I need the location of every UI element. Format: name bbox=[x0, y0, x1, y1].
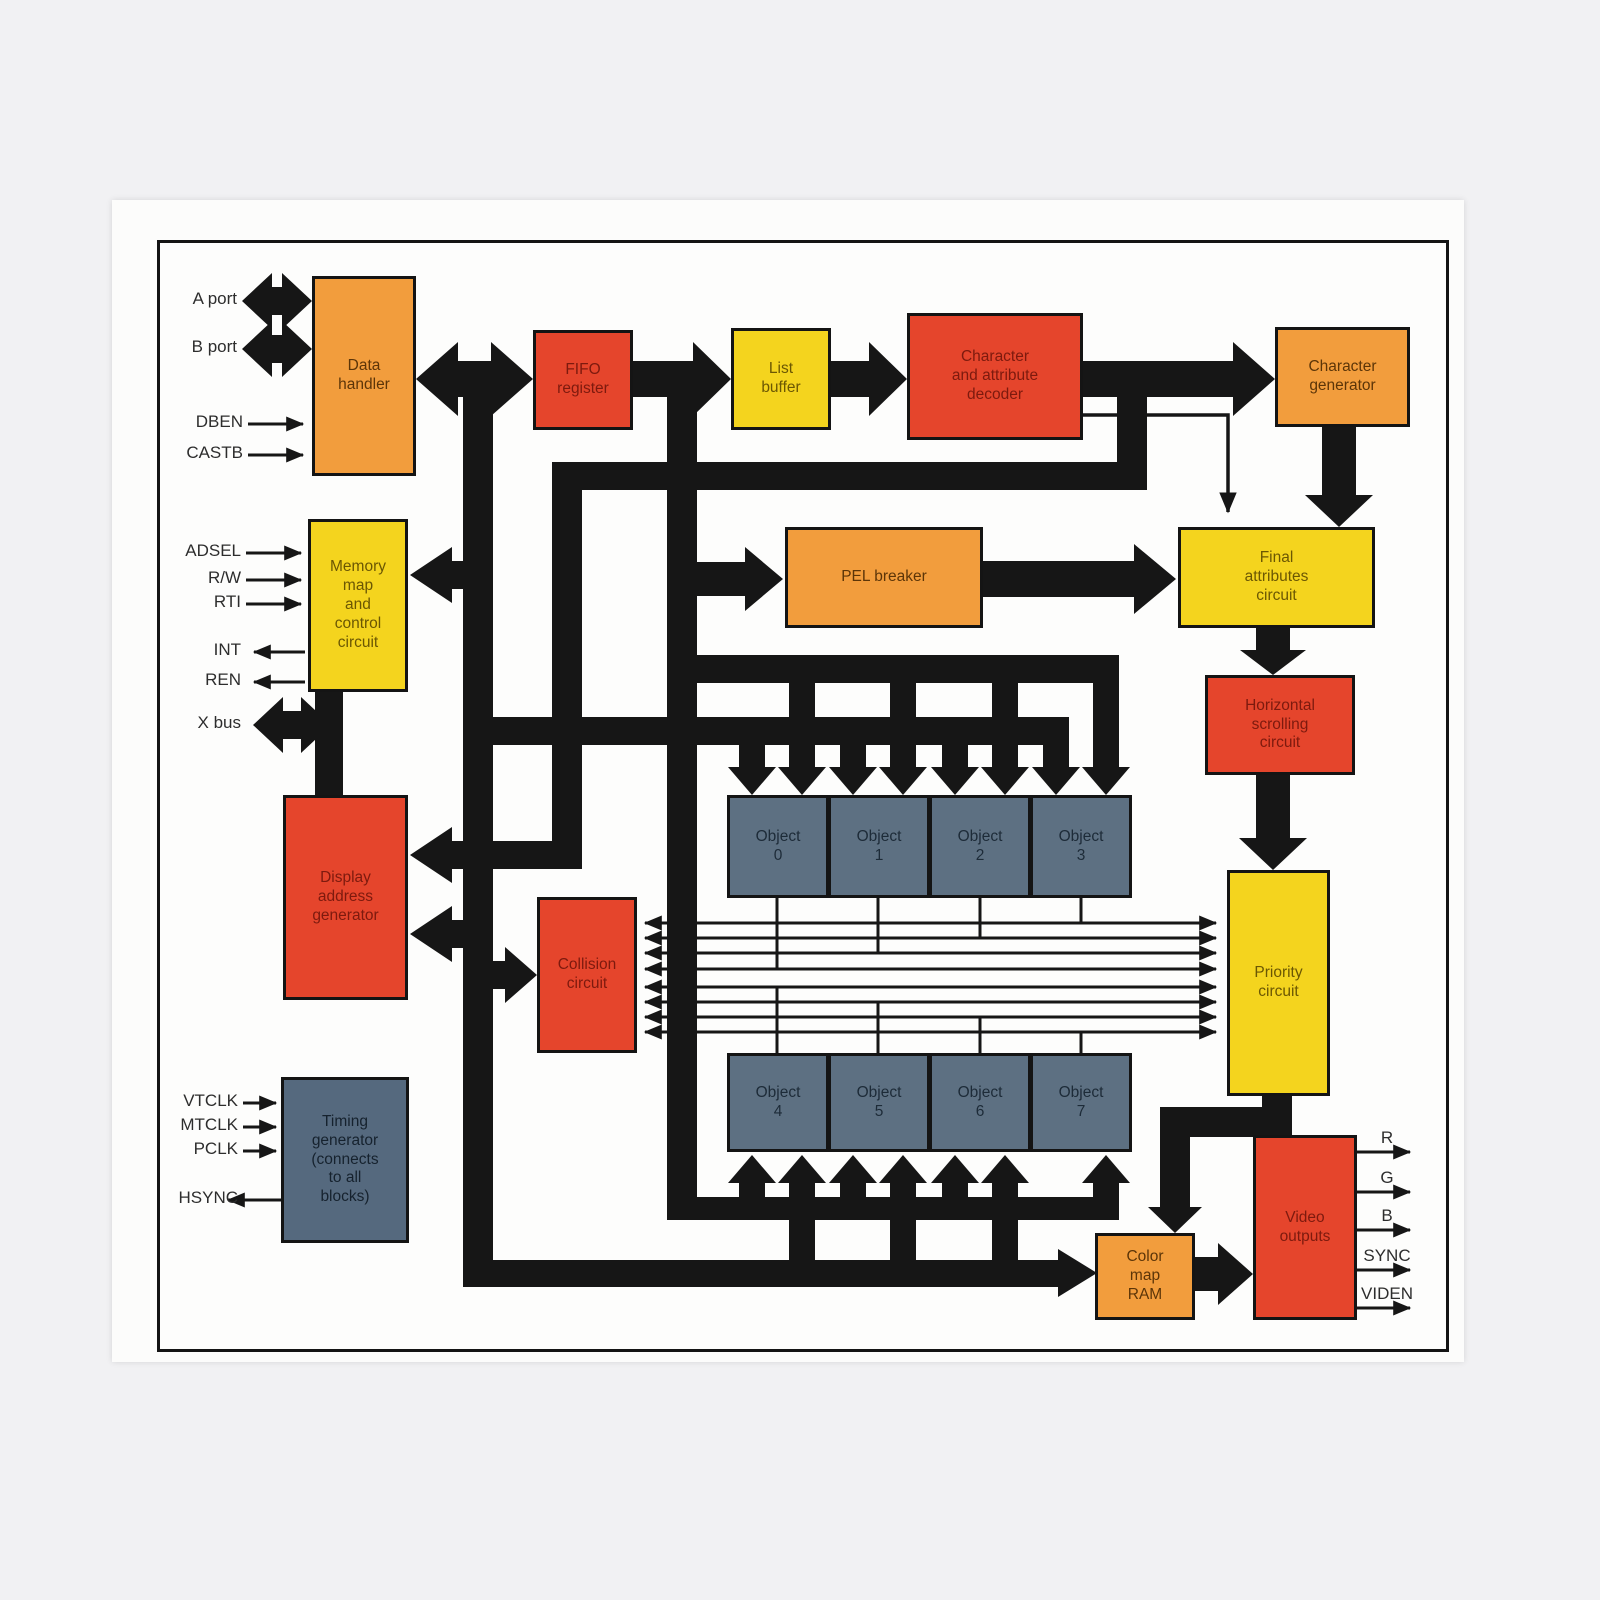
chargen-down-head bbox=[1305, 495, 1373, 527]
listbuffer-decoder-bus bbox=[831, 342, 907, 416]
label-castb: CASTB bbox=[133, 443, 243, 463]
label-adsel: ADSEL bbox=[131, 541, 241, 561]
label-viden: VIDEN bbox=[1352, 1284, 1422, 1304]
b-port-arrow bbox=[242, 321, 312, 377]
label-vtclk: VTCLK bbox=[128, 1091, 238, 1111]
block-data-handler: Data handler bbox=[312, 276, 416, 476]
memorymap-dag-bus bbox=[315, 692, 343, 795]
label-b-port: B port bbox=[127, 337, 237, 357]
colormap-video-bus bbox=[1195, 1243, 1253, 1305]
priority-out-3 bbox=[1160, 1107, 1190, 1207]
label-r: R bbox=[1352, 1128, 1422, 1148]
label-b: B bbox=[1352, 1206, 1422, 1226]
block-object-6: Object 6 bbox=[929, 1053, 1031, 1152]
label-int: INT bbox=[131, 640, 241, 660]
chargen-down-shaft bbox=[1322, 427, 1356, 495]
block-fifo-register: FIFO register bbox=[533, 330, 633, 430]
label-xbus: X bus bbox=[131, 713, 241, 733]
block-object-7: Object 7 bbox=[1030, 1053, 1132, 1152]
block-character-attribute-decoder: Character and attribute decoder bbox=[907, 313, 1083, 440]
label-pclk: PCLK bbox=[128, 1139, 238, 1159]
pel-in-arrow bbox=[697, 547, 783, 611]
object-bus-a bbox=[667, 655, 1119, 683]
fifo-riser-bus bbox=[667, 397, 697, 1220]
dag-arrow-bottom bbox=[410, 906, 463, 962]
block-timing-generator: Timing generator (connects to all blocks… bbox=[281, 1077, 409, 1243]
busd-colormap-head bbox=[1058, 1249, 1097, 1297]
block-color-map-ram: Color map RAM bbox=[1095, 1233, 1195, 1320]
block-object-5: Object 5 bbox=[828, 1053, 930, 1152]
feedback-bar-drop bbox=[552, 490, 582, 869]
label-dben: DBEN bbox=[133, 412, 243, 432]
label-mtclk: MTCLK bbox=[128, 1115, 238, 1135]
label-rw: R/W bbox=[131, 568, 241, 588]
label-a-port: A port bbox=[127, 289, 237, 309]
object-bus-b bbox=[463, 717, 1069, 745]
feedback-bar-riser bbox=[1117, 397, 1147, 462]
pel-final-bus bbox=[983, 544, 1176, 614]
final-hscroll-shaft bbox=[1256, 628, 1290, 650]
block-object-0: Object 0 bbox=[727, 795, 829, 898]
label-hsync: HSYNC bbox=[128, 1188, 238, 1208]
block-horizontal-scrolling: Horizontal scrolling circuit bbox=[1205, 675, 1355, 775]
block-object-4: Object 4 bbox=[727, 1053, 829, 1152]
block-memory-map-control: Memory map and control circuit bbox=[308, 519, 408, 692]
a-port-arrow bbox=[242, 273, 312, 329]
object-bus-d bbox=[463, 1260, 1058, 1287]
block-object-2: Object 2 bbox=[929, 795, 1031, 898]
diagram-stage: Data handler FIFO register List buffer C… bbox=[0, 0, 1600, 1600]
block-pel-breaker: PEL breaker bbox=[785, 527, 983, 628]
feedback-bar bbox=[552, 462, 1147, 490]
label-g: G bbox=[1352, 1168, 1422, 1188]
block-character-generator: Character generator bbox=[1275, 327, 1410, 427]
hscroll-priority-shaft bbox=[1256, 775, 1290, 838]
block-object-3: Object 3 bbox=[1030, 795, 1132, 898]
membus-memorymap-arrow bbox=[410, 547, 463, 603]
priority-colormap-head bbox=[1148, 1207, 1202, 1233]
block-video-outputs: Video outputs bbox=[1253, 1135, 1357, 1320]
collision-arrow bbox=[493, 947, 537, 1003]
block-collision-circuit: Collision circuit bbox=[537, 897, 637, 1053]
block-list-buffer: List buffer bbox=[731, 328, 831, 430]
block-display-address-generator: Display address generator bbox=[283, 795, 408, 1000]
block-object-1: Object 1 bbox=[828, 795, 930, 898]
label-sync: SYNC bbox=[1352, 1246, 1422, 1266]
label-rti: RTI bbox=[131, 592, 241, 612]
decoder-chargen-bus bbox=[1083, 342, 1275, 416]
label-ren: REN bbox=[131, 670, 241, 690]
block-final-attributes: Final attributes circuit bbox=[1178, 527, 1375, 628]
block-priority-circuit: Priority circuit bbox=[1227, 870, 1330, 1096]
